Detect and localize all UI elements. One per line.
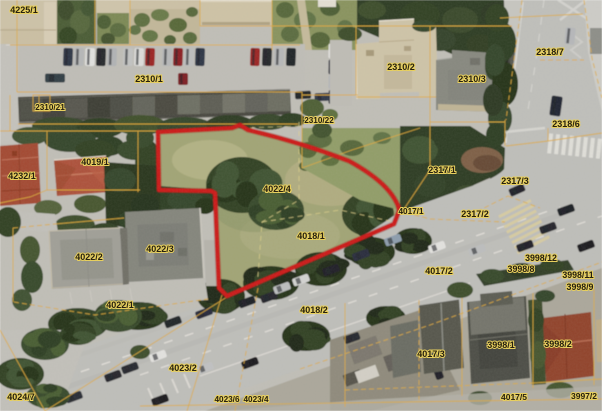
svg-text:4022/2: 4022/2 xyxy=(75,252,103,262)
svg-text:4018/2: 4018/2 xyxy=(300,305,328,315)
svg-text:3998/1: 3998/1 xyxy=(487,340,515,350)
svg-text:4019/1: 4019/1 xyxy=(81,157,109,167)
svg-text:3998/8: 3998/8 xyxy=(508,264,535,274)
svg-text:2317/2: 2317/2 xyxy=(461,209,489,219)
svg-text:4022/4: 4022/4 xyxy=(263,184,291,194)
svg-text:4018/1: 4018/1 xyxy=(297,231,325,241)
svg-text:2310/1: 2310/1 xyxy=(135,74,163,84)
svg-text:3998/12: 3998/12 xyxy=(525,253,557,263)
svg-text:4022/3: 4022/3 xyxy=(146,244,174,254)
svg-text:4024/7: 4024/7 xyxy=(7,392,35,402)
svg-text:4022/1: 4022/1 xyxy=(106,300,134,310)
svg-text:2310/3: 2310/3 xyxy=(458,74,486,84)
svg-text:2310/21: 2310/21 xyxy=(35,103,65,112)
svg-text:2317/1: 2317/1 xyxy=(428,165,456,175)
svg-text:4017/1: 4017/1 xyxy=(398,207,423,216)
svg-text:3998/11: 3998/11 xyxy=(562,270,593,280)
svg-text:2310/2: 2310/2 xyxy=(387,62,415,72)
svg-text:4023/6: 4023/6 xyxy=(214,395,239,404)
svg-text:4017/2: 4017/2 xyxy=(425,266,453,276)
svg-text:3998/2: 3998/2 xyxy=(544,339,572,349)
svg-text:2318/6: 2318/6 xyxy=(552,119,580,129)
svg-text:3998/9: 3998/9 xyxy=(567,282,594,292)
svg-text:4023/2: 4023/2 xyxy=(169,363,197,373)
svg-text:2317/3: 2317/3 xyxy=(501,176,529,186)
svg-text:2318/7: 2318/7 xyxy=(536,47,564,57)
svg-text:4017/3: 4017/3 xyxy=(417,349,445,359)
svg-text:3997/2: 3997/2 xyxy=(571,391,597,401)
svg-text:4023/4: 4023/4 xyxy=(243,395,268,404)
svg-text:4232/1: 4232/1 xyxy=(8,171,36,181)
svg-text:4017/5: 4017/5 xyxy=(501,392,527,402)
svg-text:2310/22: 2310/22 xyxy=(304,116,334,125)
svg-text:4225/1: 4225/1 xyxy=(10,5,38,15)
